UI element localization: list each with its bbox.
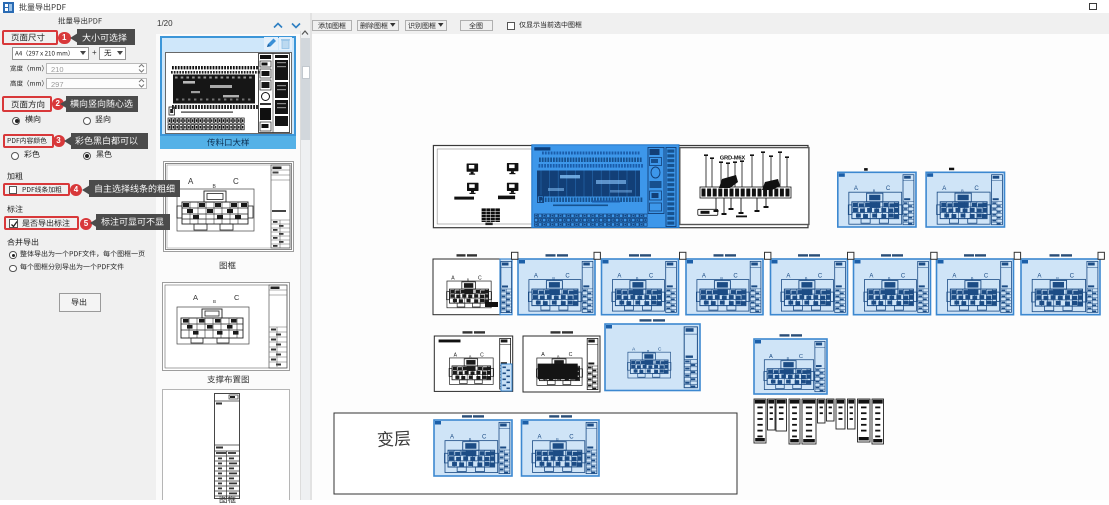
svg-text:C: C (233, 177, 239, 186)
svg-text:A: A (193, 293, 198, 302)
svg-text:C: C (234, 293, 240, 302)
svg-text:B: B (213, 299, 216, 304)
svg-text:A: A (188, 177, 194, 186)
